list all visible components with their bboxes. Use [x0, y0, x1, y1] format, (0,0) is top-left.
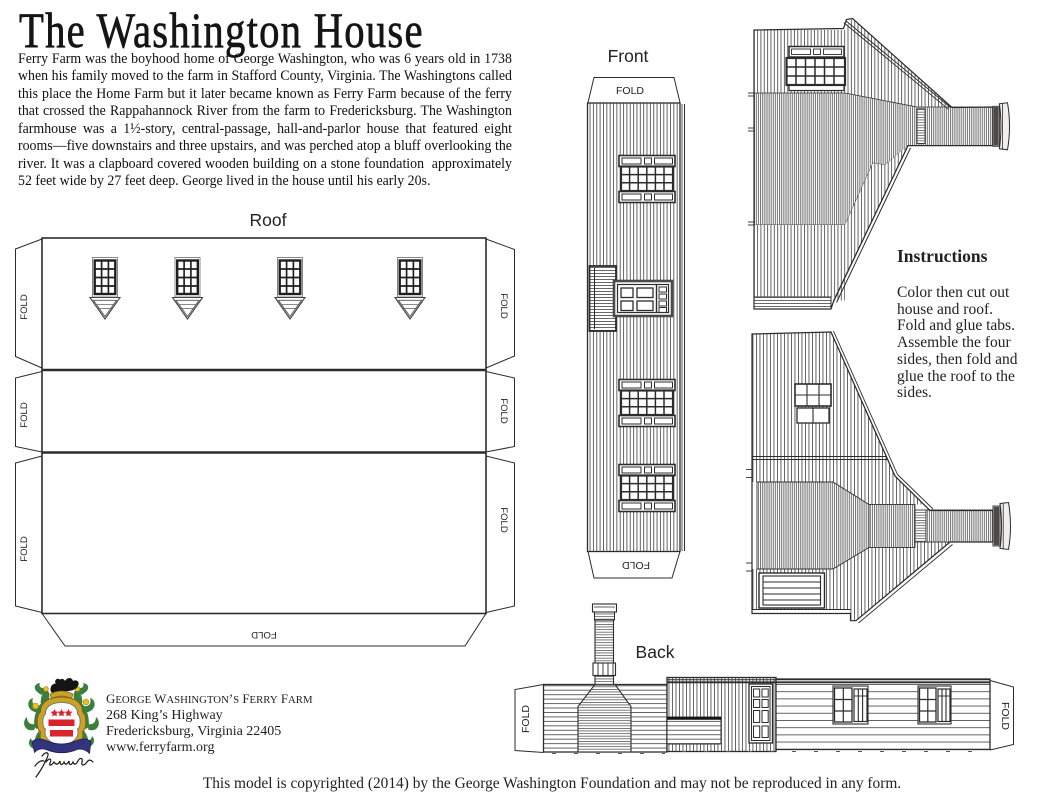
svg-text:FOLD: FOLD [498, 293, 509, 319]
svg-text:FOLD: FOLD [622, 559, 650, 571]
svg-text:FOLD: FOLD [498, 398, 509, 424]
svg-text:FOLD: FOLD [999, 702, 1011, 730]
svg-text:FOLD: FOLD [19, 402, 30, 428]
svg-text:FOLD: FOLD [251, 629, 277, 640]
svg-text:FOLD: FOLD [19, 294, 30, 320]
svg-text:Back: Back [636, 642, 675, 662]
svg-text:FOLD: FOLD [498, 507, 509, 533]
svg-text:Roof: Roof [250, 210, 287, 230]
svg-text:FOLD: FOLD [19, 536, 30, 562]
svg-text:FOLD: FOLD [616, 85, 644, 97]
svg-text:Front: Front [608, 46, 649, 66]
svg-text:FOLD: FOLD [520, 705, 532, 733]
